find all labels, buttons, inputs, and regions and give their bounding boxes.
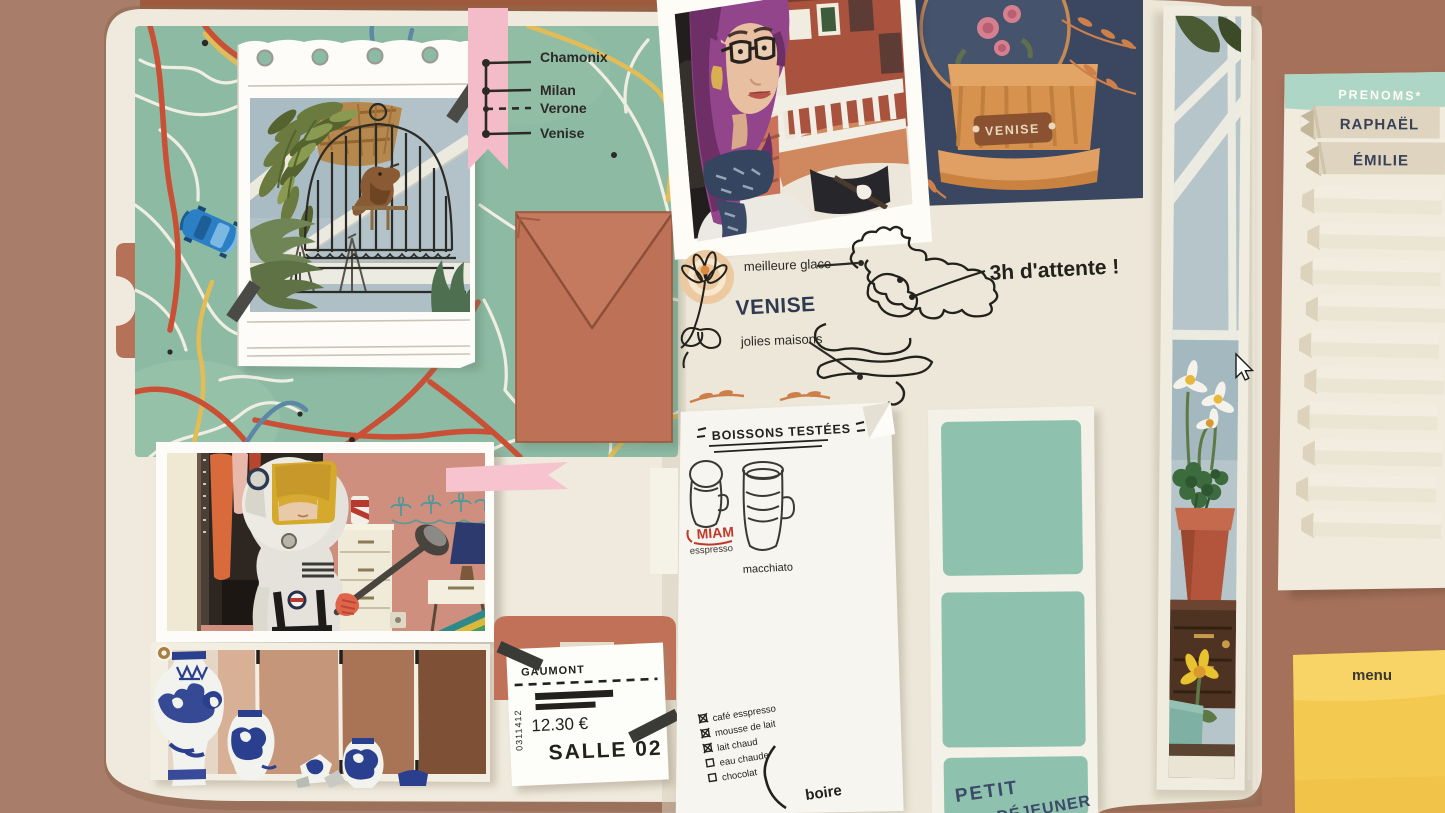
svg-text:jolies maisons: jolies maisons (740, 331, 824, 349)
svg-text:MIAM: MIAM (696, 523, 734, 542)
svg-text:Milan: Milan (540, 82, 576, 98)
svg-text:ÉMILIE: ÉMILIE (1353, 152, 1409, 169)
svg-text:0311412: 0311412 (513, 709, 525, 751)
svg-text:Verone: Verone (540, 100, 587, 116)
svg-text:Venise: Venise (540, 125, 585, 141)
svg-text:VENISE: VENISE (735, 293, 816, 320)
svg-text:VENISE: VENISE (985, 122, 1041, 139)
svg-text:PRENOMS*: PRENOMS* (1338, 88, 1422, 104)
svg-text:menu: menu (1352, 667, 1392, 684)
svg-text:12.30 €: 12.30 € (531, 714, 589, 735)
svg-text:Chamonix: Chamonix (540, 49, 608, 65)
svg-text:RAPHAËL: RAPHAËL (1340, 116, 1420, 133)
